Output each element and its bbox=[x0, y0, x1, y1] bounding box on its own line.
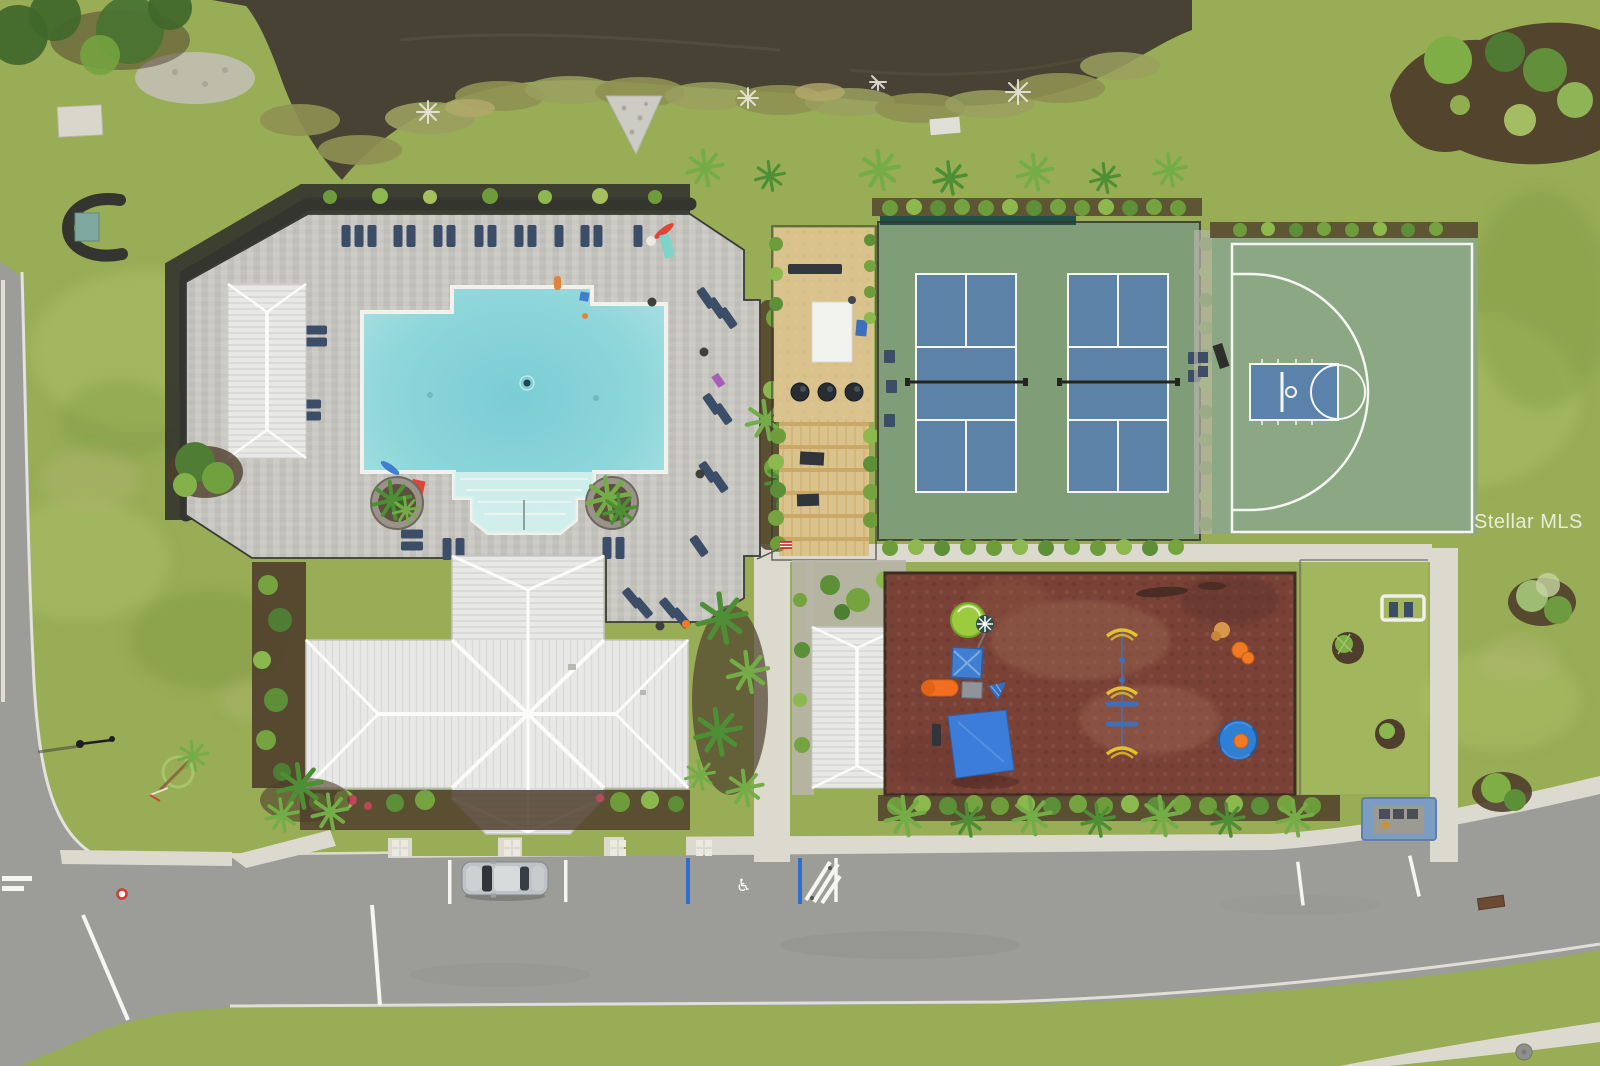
pickleball-courts bbox=[864, 198, 1213, 556]
swimmer bbox=[524, 380, 531, 387]
basketball-court bbox=[1194, 222, 1478, 534]
pickleball-court-2 bbox=[1057, 274, 1180, 492]
shade-sail bbox=[948, 710, 1014, 778]
pool-cabana-building bbox=[228, 284, 306, 458]
mail-kiosk bbox=[1362, 798, 1436, 840]
grills bbox=[791, 383, 863, 401]
watermark: Stellar MLS bbox=[1474, 511, 1583, 534]
clubhouse-south-bed bbox=[300, 790, 690, 830]
person-sunbathing bbox=[554, 276, 561, 290]
stall-line bbox=[448, 860, 452, 904]
play-bench bbox=[932, 724, 941, 746]
bench bbox=[788, 264, 842, 274]
utility-box bbox=[75, 213, 99, 241]
pergola bbox=[779, 420, 869, 556]
aerial-photo: ♿ Stellar MLS bbox=[0, 0, 1600, 1066]
scene-svg: ♿ bbox=[0, 0, 1600, 1066]
key bbox=[1250, 364, 1338, 420]
windshield bbox=[482, 866, 492, 892]
clubhouse-west-bed bbox=[252, 562, 306, 788]
street-sign bbox=[118, 890, 127, 899]
canopy-table bbox=[812, 302, 852, 362]
spinner bbox=[1219, 721, 1257, 759]
pickleball-court-1 bbox=[905, 274, 1028, 492]
person-on-deck bbox=[682, 620, 690, 628]
parked-car bbox=[462, 860, 548, 902]
windscreen bbox=[880, 216, 1076, 225]
stall-line bbox=[564, 860, 568, 902]
handicap-symbol: ♿ bbox=[736, 876, 751, 896]
